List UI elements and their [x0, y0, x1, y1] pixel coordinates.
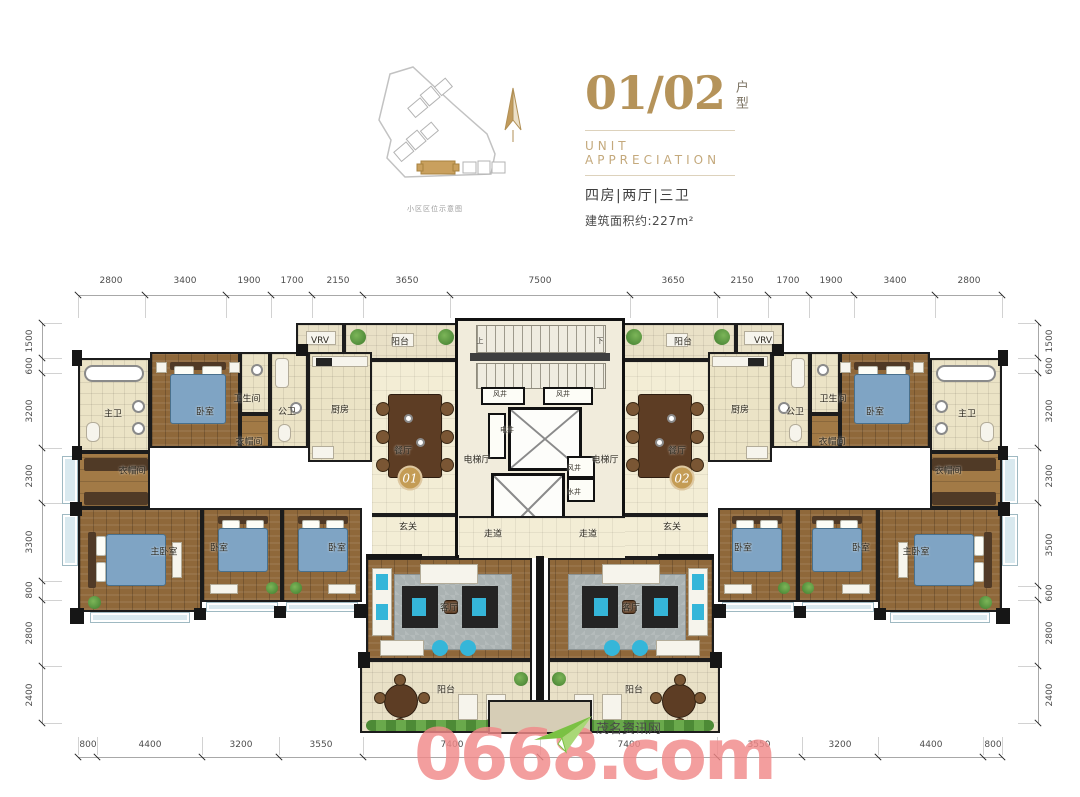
dim-extension [44, 448, 62, 449]
dim-extension [1018, 723, 1036, 724]
dim-extension [768, 297, 769, 318]
dim-extension [878, 737, 879, 755]
dim-number: 2800 [958, 276, 981, 286]
dim-number: 3650 [662, 276, 685, 286]
watermark: 0668.com 茂名资讯网 [414, 712, 744, 796]
dim-number: 4400 [920, 740, 943, 750]
dim-extension [1018, 600, 1036, 601]
dim-number: 4400 [139, 740, 162, 750]
dim-extension [1018, 666, 1036, 667]
dim-line [1038, 323, 1039, 723]
dim-extension [1018, 323, 1036, 324]
dim-number: 600 [25, 357, 35, 374]
dim-extension [1002, 737, 1003, 755]
watermark-site-name: 茂名资讯网 [596, 718, 661, 737]
dim-number: 800 [79, 740, 96, 750]
dim-extension [44, 323, 62, 324]
dim-number: 800 [984, 740, 1001, 750]
dim-extension [1018, 358, 1036, 359]
dim-number: 600 [1045, 584, 1055, 601]
dim-number: 3400 [884, 276, 907, 286]
dim-number: 1500 [1045, 330, 1055, 353]
floorplan-page: 小区区位示意图 01/02 户型 UNIT APPRECIATION 四房|两厅… [0, 0, 1080, 797]
dim-number: 2800 [25, 622, 35, 645]
dim-number: 1900 [238, 276, 261, 286]
dim-extension [1018, 448, 1036, 449]
dim-extension [145, 297, 146, 318]
dim-number: 3550 [310, 740, 333, 750]
dim-extension [44, 358, 62, 359]
dim-number: 2400 [1045, 684, 1055, 707]
dim-extension [78, 297, 79, 318]
dim-extension [271, 297, 272, 318]
dim-number: 800 [25, 581, 35, 598]
dim-number: 2800 [100, 276, 123, 286]
dim-number: 1700 [281, 276, 304, 286]
dim-number: 2800 [1045, 622, 1055, 645]
dim-extension [312, 297, 313, 318]
dim-number: 3650 [396, 276, 419, 286]
dim-extension [854, 297, 855, 318]
dim-number: 2150 [327, 276, 350, 286]
dim-number: 3200 [1045, 400, 1055, 423]
dim-extension [630, 297, 631, 318]
dim-extension [44, 666, 62, 667]
dim-number: 1900 [820, 276, 843, 286]
dim-number: 3200 [829, 740, 852, 750]
dim-extension [226, 297, 227, 318]
dim-extension [44, 503, 62, 504]
dim-extension [935, 297, 936, 318]
dim-extension [279, 737, 280, 755]
dim-extension [363, 737, 364, 755]
dim-extension [202, 737, 203, 755]
dim-number: 7500 [529, 276, 552, 286]
dim-number: 3200 [25, 400, 35, 423]
dimensions-layer: 2800340019001700215036507500365021501700… [0, 0, 1080, 797]
dim-extension [809, 297, 810, 318]
dim-extension [44, 373, 62, 374]
dim-extension [1018, 586, 1036, 587]
dim-extension [363, 297, 364, 318]
dim-extension [1018, 503, 1036, 504]
dim-number: 2300 [25, 465, 35, 488]
dim-line [78, 295, 1002, 296]
dim-number: 1500 [25, 330, 35, 353]
dim-number: 600 [1045, 357, 1055, 374]
dim-number: 3300 [25, 531, 35, 554]
dim-number: 1700 [777, 276, 800, 286]
dim-line [42, 323, 43, 723]
dim-extension [802, 737, 803, 755]
dim-number: 2300 [1045, 465, 1055, 488]
dim-extension [44, 723, 62, 724]
dim-extension [717, 297, 718, 318]
dim-extension [1002, 297, 1003, 318]
dim-extension [44, 581, 62, 582]
dim-number: 2400 [25, 684, 35, 707]
dim-number: 3500 [1045, 534, 1055, 557]
paper-plane-icon [532, 714, 596, 754]
dim-number: 3400 [174, 276, 197, 286]
dim-number: 2150 [731, 276, 754, 286]
dim-extension [44, 600, 62, 601]
dim-extension [1018, 373, 1036, 374]
dim-extension [97, 737, 98, 755]
dim-extension [450, 297, 451, 318]
floor-plan: VRV阳台主卫卧室卫生间公卫厨房衣帽间衣帽间餐厅玄关客厅阳台主卧室卧室卧室上下风… [0, 0, 1080, 797]
dim-number: 3200 [230, 740, 253, 750]
